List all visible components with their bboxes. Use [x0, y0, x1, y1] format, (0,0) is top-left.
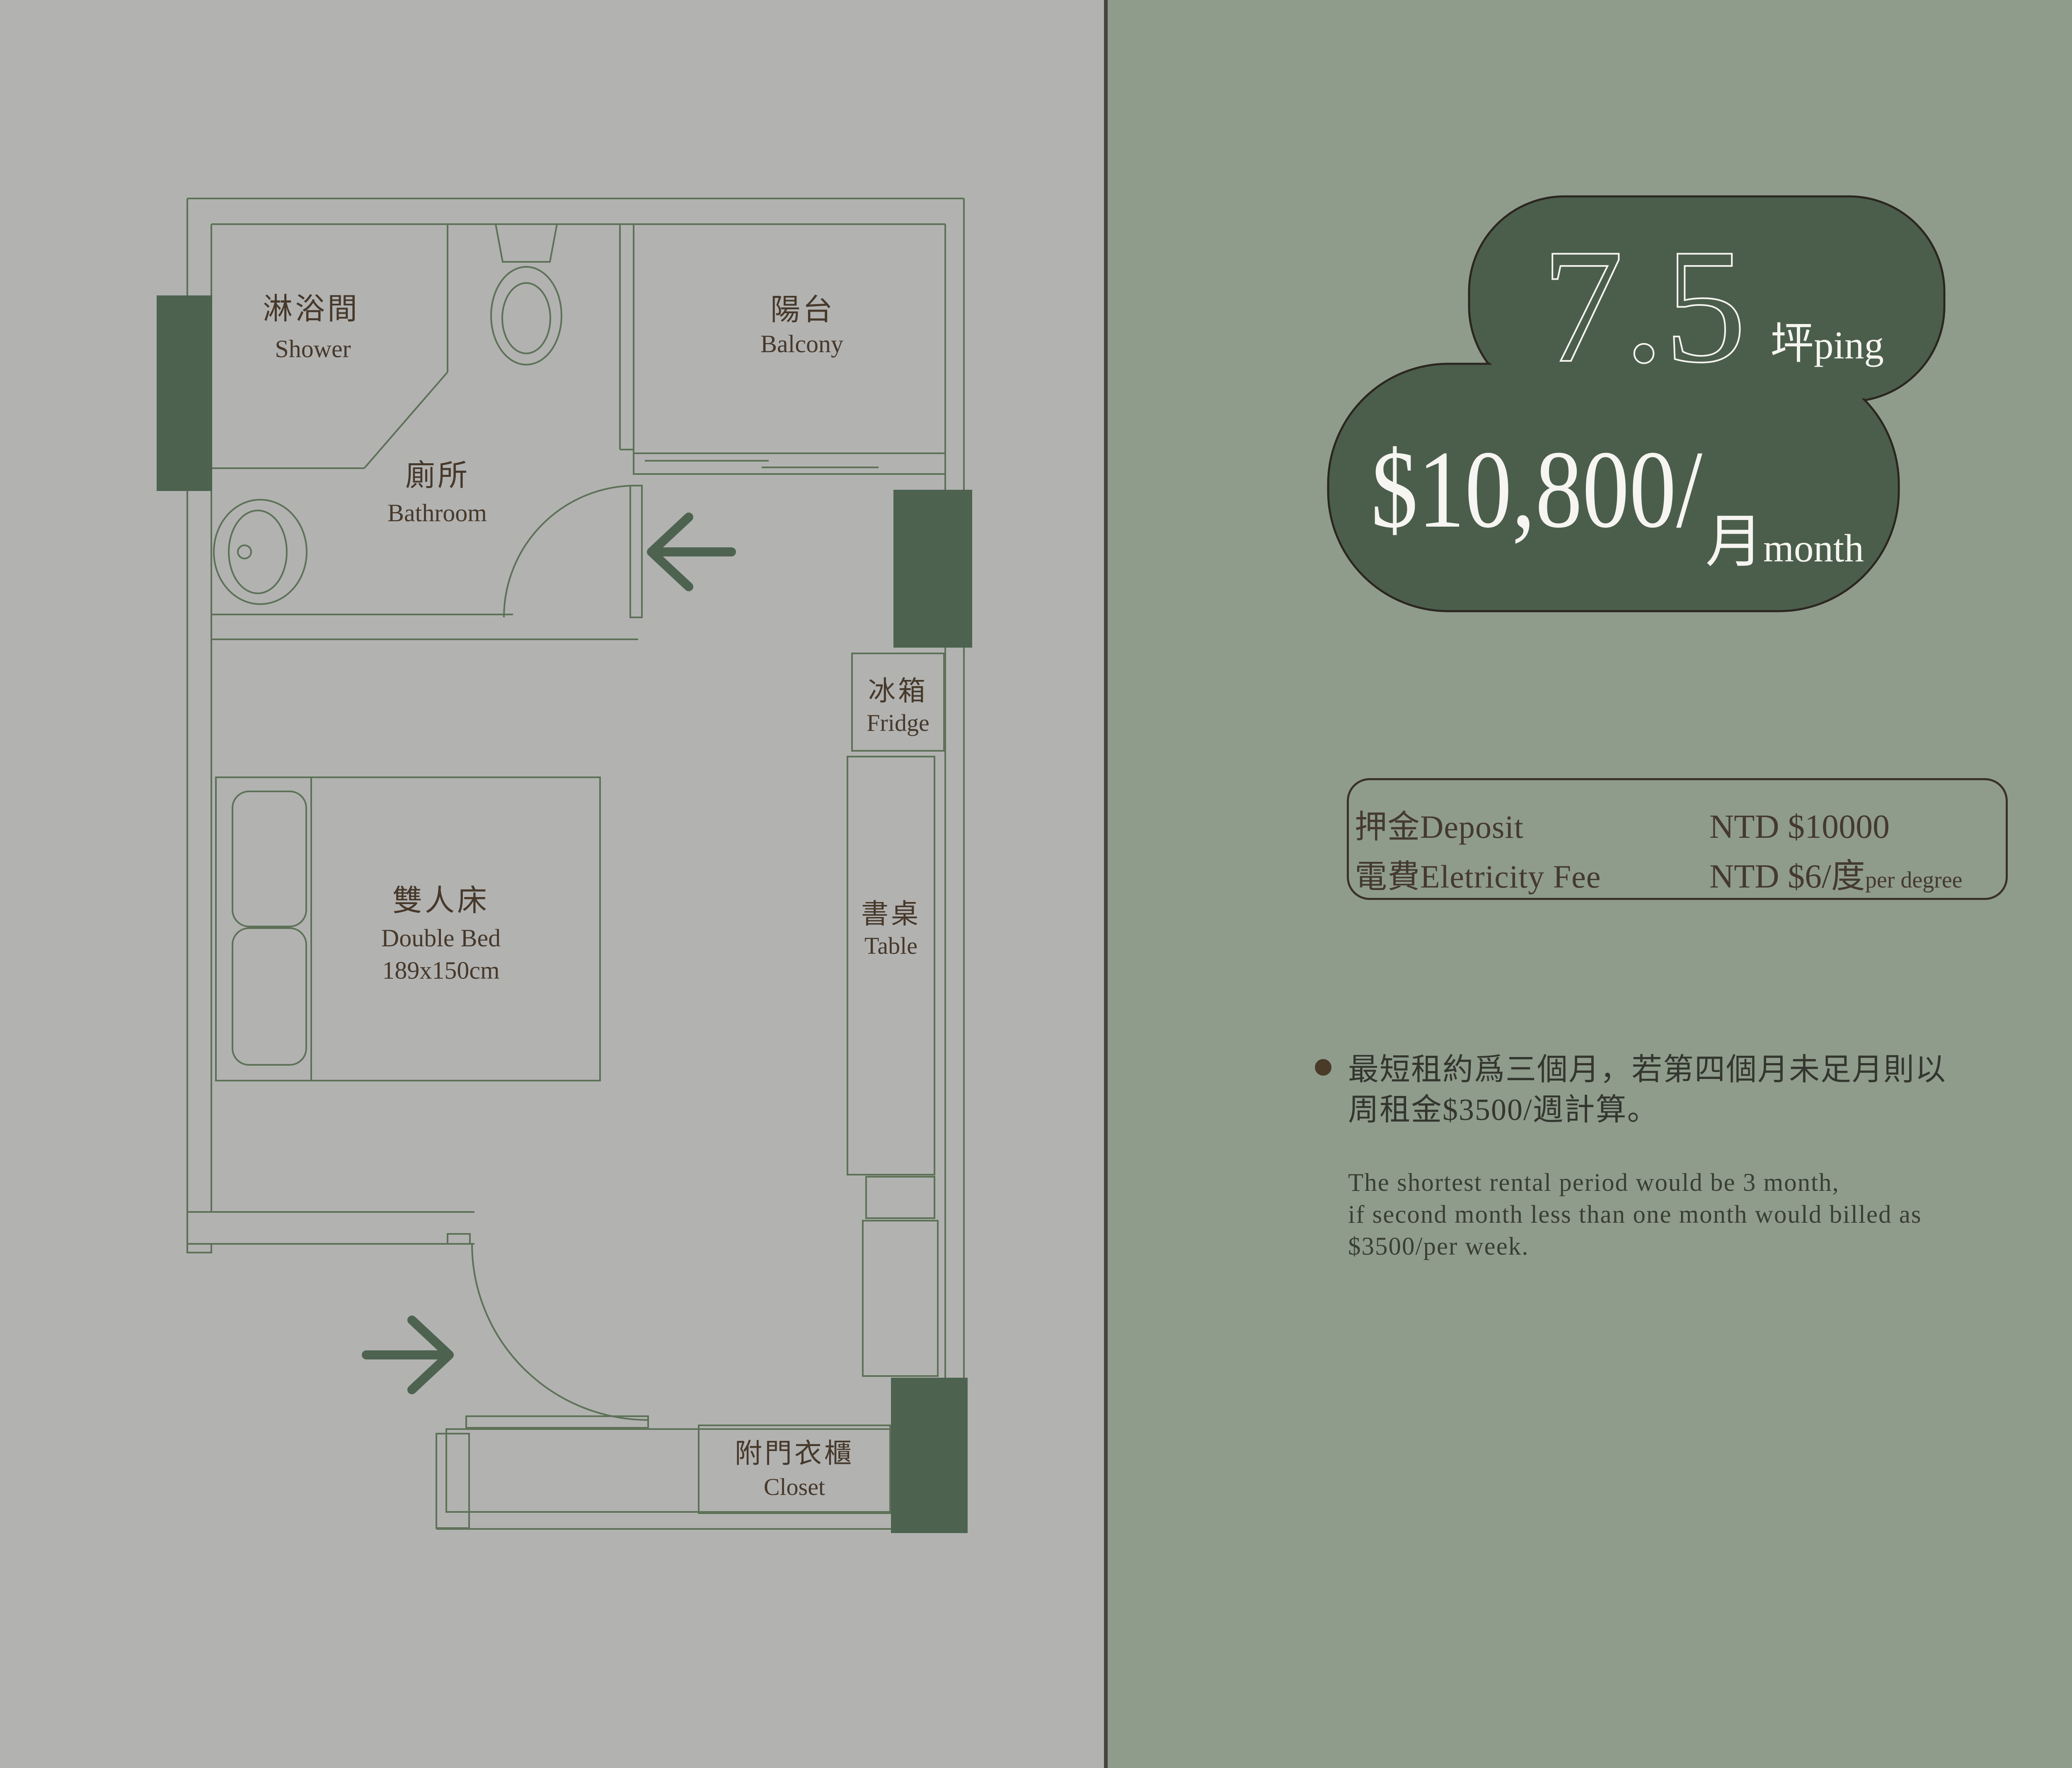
area-unit-zh: 坪 — [1770, 319, 1814, 368]
shower-label-en: Shower — [275, 335, 351, 363]
electricity-row: 電費Eletricity Fee NTD $6/度per degree — [1355, 848, 1997, 886]
area-unit-en: ping — [1814, 323, 1884, 367]
closet-icon — [436, 1416, 968, 1529]
balcony-window-icon — [634, 453, 945, 474]
closet-label-en: Closet — [764, 1473, 825, 1500]
bed-label-zh: 雙人床 — [392, 884, 489, 917]
note-zh-line: 最短租約爲三個月，若第四個月未足月則以 — [1348, 1050, 1946, 1090]
electricity-value-suffix: per degree — [1865, 867, 1963, 893]
arrow-left-icon — [651, 517, 731, 587]
price-value: $10,800/ — [1371, 428, 1703, 551]
deposit-value: NTD $10000 — [1709, 807, 1997, 846]
price-unit-zh: 月 — [1705, 510, 1763, 574]
sink-icon — [214, 500, 307, 604]
note-en-line: if second month less than one month woul… — [1348, 1199, 1922, 1231]
fees-box: 押金Deposit NTD $10000 電費Eletricity Fee NT… — [1347, 778, 2008, 900]
note-en-line: $3500/per week. — [1348, 1231, 1922, 1263]
fridge-label-en: Fridge — [867, 709, 929, 736]
price-unit-en: month — [1763, 526, 1864, 570]
bathroom-door-icon — [504, 486, 642, 617]
arrow-right-icon — [366, 1320, 449, 1390]
electricity-value-wrap: NTD $6/度per degree — [1709, 848, 1997, 897]
note-zh-line: 周租金$3500/週計算。 — [1348, 1090, 1946, 1130]
right-wall-block — [893, 490, 972, 648]
shower-label-zh: 淋浴間 — [263, 293, 360, 326]
balcony-label-zh: 陽台 — [770, 293, 835, 327]
summary-blobs: 7.5 坪ping $10,800/ 月month — [1305, 174, 2010, 692]
closet-label-zh: 附門衣櫃 — [735, 1439, 854, 1469]
closet-wall-block — [891, 1378, 968, 1533]
bed-label-size: 189x150cm — [382, 957, 499, 984]
toilet-icon — [491, 224, 562, 365]
area-value: 7.5 — [1542, 215, 1746, 397]
floor-plan: 淋浴間 Shower 廁所 Bathroom 陽台 Balcony 雙人床 Do… — [0, 0, 1119, 1768]
desk-icon — [847, 757, 938, 1376]
note-zh: 最短租約爲三個月，若第四個月未足月則以 周租金$3500/週計算。 — [1348, 1050, 1946, 1130]
rental-listing-poster: 淋浴間 Shower 廁所 Bathroom 陽台 Balcony 雙人床 Do… — [0, 0, 2072, 1768]
balcony-label-en: Balcony — [760, 330, 843, 358]
bullet-dot-icon — [1315, 1059, 1331, 1076]
note-en-line: The shortest rental period would be 3 mo… — [1348, 1167, 1922, 1199]
note-en: The shortest rental period would be 3 mo… — [1348, 1167, 1922, 1263]
deposit-row: 押金Deposit NTD $10000 — [1355, 801, 1997, 839]
bed-label-en: Double Bed — [381, 924, 501, 952]
area-unit: 坪ping — [1770, 319, 1884, 368]
table-label-zh: 書桌 — [861, 899, 921, 929]
electricity-value: NTD $6/度 — [1709, 857, 1865, 895]
fridge-label-zh: 冰箱 — [868, 676, 928, 706]
accent-blocks — [157, 295, 972, 1533]
direction-arrows — [366, 517, 731, 1390]
entry-door-icon — [472, 1244, 648, 1420]
bathroom-label-zh: 廁所 — [405, 459, 470, 492]
table-label-en: Table — [864, 932, 917, 959]
deposit-label: 押金Deposit — [1355, 801, 1709, 847]
electricity-label: 電費Eletricity Fee — [1355, 851, 1709, 897]
left-wall-block — [157, 295, 212, 491]
bathroom-label-en: Bathroom — [387, 499, 487, 527]
